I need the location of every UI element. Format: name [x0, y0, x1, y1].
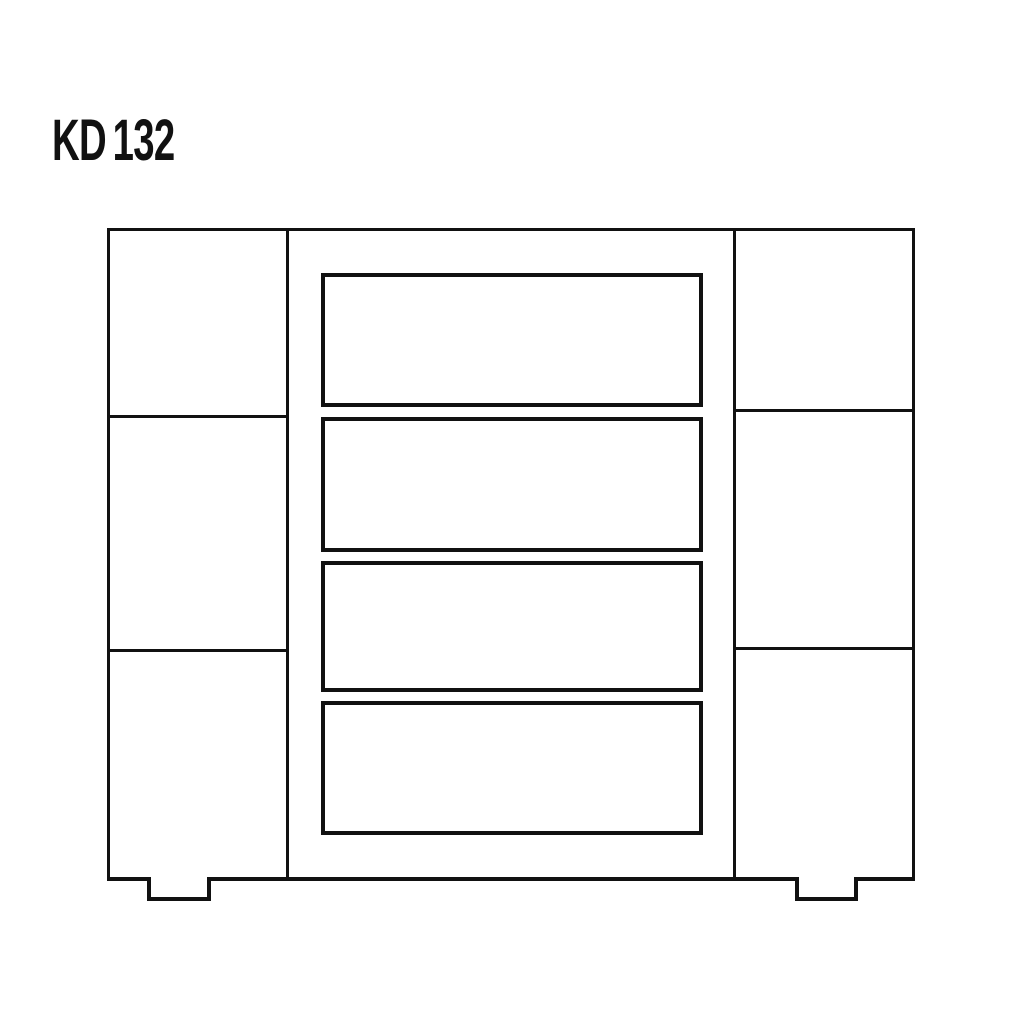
drawer-front-2 — [321, 417, 703, 552]
bottom-edge-right-segment — [854, 877, 915, 881]
page-root: KD132 — [0, 0, 1024, 1024]
model-label: KD132 — [52, 112, 174, 170]
drawer-front-3 — [321, 561, 703, 692]
right-column-shelf-line-2 — [733, 647, 915, 650]
bottom-edge-middle-segment — [207, 877, 799, 881]
model-label-prefix: KD — [52, 108, 106, 173]
right-partition-line — [733, 228, 736, 881]
left-column-shelf-line-2 — [107, 649, 289, 652]
model-label-number: 132 — [113, 108, 175, 173]
left-partition-line — [286, 228, 289, 881]
bottom-edge-left-segment — [107, 877, 151, 881]
foot-right — [795, 877, 858, 901]
drawer-front-4 — [321, 701, 703, 835]
drawer-front-1 — [321, 273, 703, 407]
foot-left — [147, 877, 211, 901]
left-column-shelf-line-1 — [107, 415, 289, 418]
right-column-shelf-line-1 — [733, 409, 915, 412]
